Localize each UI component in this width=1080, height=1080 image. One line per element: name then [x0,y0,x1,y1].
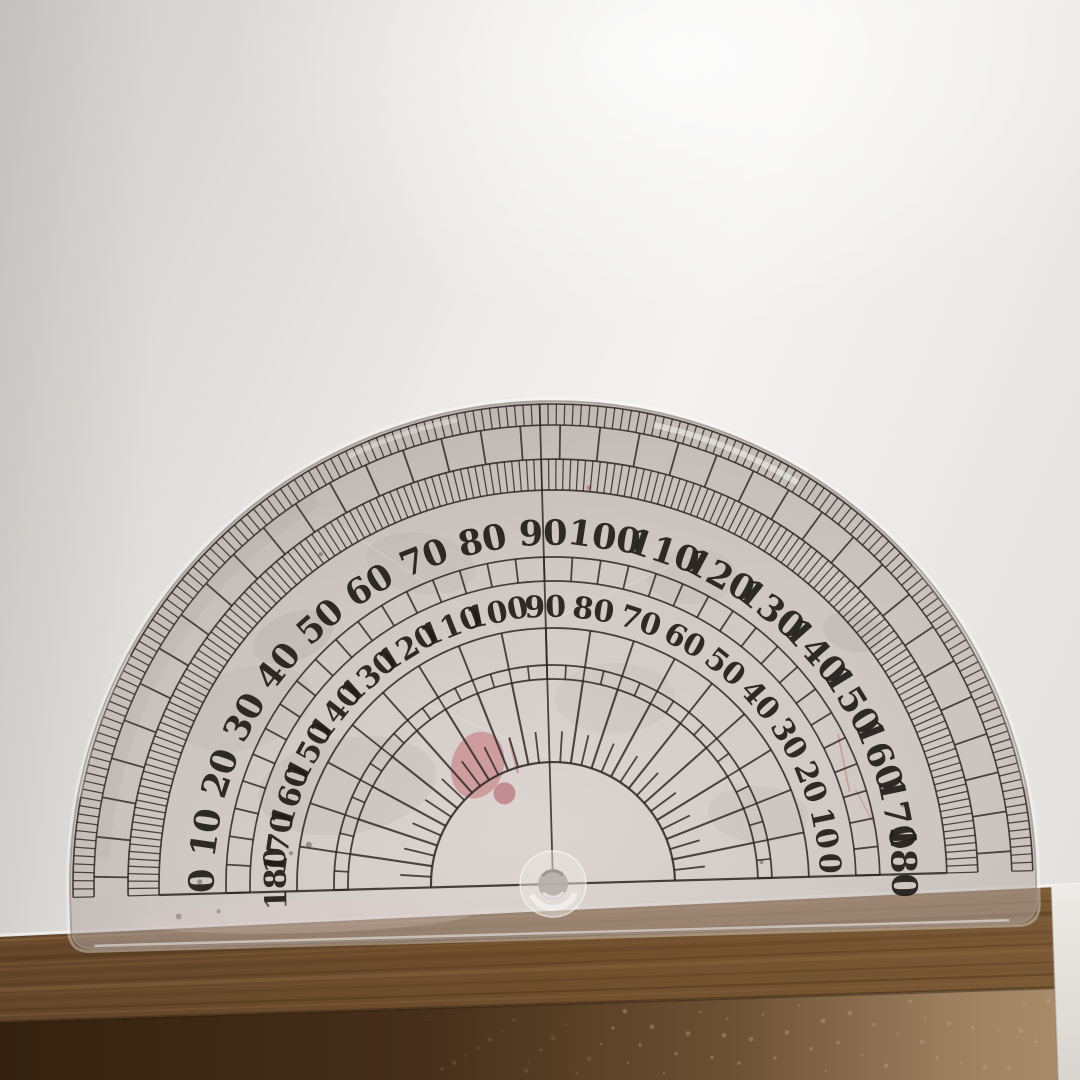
wood-speckle [983,1064,988,1069]
wood-speckle [528,1061,530,1063]
inner-degree-label: 80 [570,590,616,631]
wood-speckle [749,1037,754,1042]
wood-speckle [872,1023,876,1027]
wood-speckle [798,1005,800,1007]
wood-speckle [1007,1067,1011,1071]
wood-speckle [623,1009,628,1014]
wood-speckle [627,1062,629,1064]
wood-speckle [600,1043,602,1045]
wood-speckle [897,1033,899,1035]
wood-speckle [848,1011,853,1016]
wood-speckle [512,1019,516,1023]
wood-speckle [935,1056,939,1060]
wood-speckle [722,1033,727,1038]
wood-speckle [960,1062,962,1064]
inner-degree-label: 0 [811,852,847,874]
wood-speckle [821,1019,826,1024]
wood-speckle [587,1057,592,1062]
wood-speckle [674,1052,678,1056]
wood-speckle [429,1015,431,1017]
wood-speckle [452,1060,457,1065]
wood-speckle [551,1035,556,1040]
wood-speckle [1019,1028,1024,1033]
outer-degree-label: 90 [518,512,568,554]
wood-speckle [825,1070,827,1072]
wood-speckle [762,1013,764,1015]
protractor: 0102030405060708090100110120130140150160… [54,385,1040,952]
scene-svg: 0102030405060708090100110120130140150160… [0,0,1080,1080]
wood-speckle [836,1041,840,1045]
wood-speckle [476,1046,480,1050]
wood-speckle [773,1056,777,1060]
wood-speckle [686,1031,691,1036]
wood-speckle [1023,1002,1025,1004]
outer-degree-label: 10 [182,806,230,860]
wood-speckle [539,1048,543,1052]
wood-speckle [809,1047,813,1051]
wood-speckle [501,1029,503,1031]
wood-speckle [947,1021,952,1026]
outer-degree-label: 0 [181,868,223,893]
wood-speckle [996,1029,998,1031]
wood-speckle [611,1026,615,1030]
wood-speckle [884,1063,889,1068]
wood-speckle [924,1017,926,1019]
wood-speckle [564,1023,566,1025]
wood-speckle [663,1072,665,1074]
center-hole [519,850,587,918]
wood-speckle [971,1026,975,1030]
wood-speckle [638,1043,642,1047]
wood-speckle [1046,999,1051,1004]
photo-protractor-on-desk: 0102030405060708090100110120130140150160… [0,0,1080,1080]
wood-speckle [440,1067,444,1071]
wood-speckle [524,1068,529,1073]
outer-degree-label: 180 [881,824,924,898]
wood-speckle [710,1056,714,1060]
wood-speckle [488,1037,493,1042]
wood-speckle [650,1024,655,1029]
wood-speckle [699,1011,701,1013]
wood-speckle [1034,1039,1038,1043]
wood-speckle [908,1000,912,1004]
wood-speckle [465,1055,467,1057]
wood-speckle [920,1040,925,1045]
wood-speckle [785,1030,790,1035]
inner-degree-label: 90 [524,590,567,626]
wood-speckle [726,1018,728,1020]
wood-speckle [737,1061,741,1065]
wood-speckle [575,1072,579,1076]
wood-speckle [861,1054,863,1056]
